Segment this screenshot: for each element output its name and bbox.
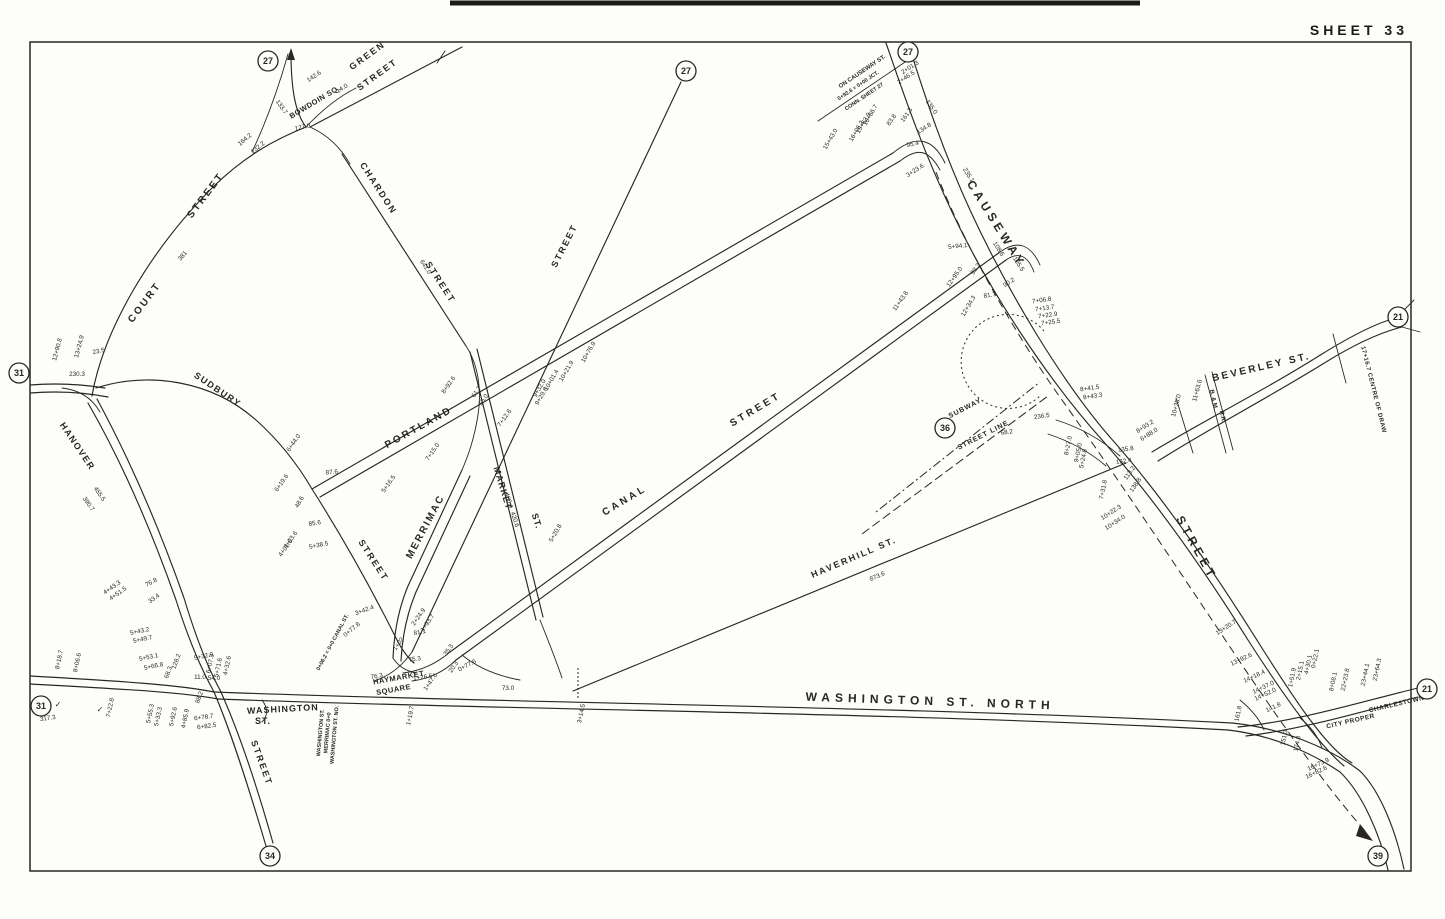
measurement-annotation: 13+24.9 <box>73 334 86 358</box>
measurement-annotation: 5+66.8 <box>143 661 164 672</box>
measurement-annotation: 23+44.1 <box>1360 662 1372 686</box>
measurement-annotation: 133.7 <box>274 99 289 116</box>
reference-circle-number: 27 <box>903 47 913 57</box>
measurement-annotation: 48.6 <box>294 495 306 510</box>
street-name-label: COURT <box>126 280 164 325</box>
measurement-annotation: 4+01.6 <box>277 538 294 558</box>
measurement-annotation: 135.8 <box>1117 445 1134 454</box>
street-line-hanover <box>97 399 220 690</box>
reference-circle-number: 36 <box>940 423 950 433</box>
street-name-label: CHARLESTOWN <box>1368 695 1425 715</box>
measurement-annotation: 3+42.4 <box>354 604 375 617</box>
measurement-annotation: 12+34.3 <box>960 294 978 318</box>
measurement-annotation: 85.6 <box>308 519 322 528</box>
street-line <box>30 684 218 699</box>
street-name-label: HAVERHILL ST. <box>809 535 898 580</box>
measurement-annotation: 73.0 <box>502 685 515 692</box>
sheet-reference-circle: 31 <box>31 696 51 716</box>
measurement-annotation: 5+20.8 <box>548 523 564 544</box>
street-line-canal <box>450 252 1000 652</box>
street-line-portland <box>320 161 900 497</box>
sheet-reference-circle: 27 <box>676 61 696 81</box>
reference-circle-number: 27 <box>681 66 691 76</box>
street-name-label: SUDBURY <box>192 370 243 409</box>
track-map-svg: SHEET 33 <box>0 0 1445 919</box>
measurement-annotation: 164.2 <box>237 132 254 148</box>
street-name-label: 0+06.2 = 0+0 CANAL ST. <box>316 613 351 672</box>
sheet-reference-circle: 34 <box>260 846 280 866</box>
measurement-annotation: 7+31.8 <box>1098 479 1109 500</box>
measurement-annotation: 3+14.5 <box>576 703 587 724</box>
measurement-annotation: 11+43.8 <box>891 290 910 313</box>
measurement-annotation: 230.3 <box>69 371 85 378</box>
junction-curve <box>540 620 562 678</box>
measurement-annotation: 10+76.9 <box>580 340 598 364</box>
sheet-reference-circle: 31 <box>9 363 29 383</box>
reference-circle-number: 21 <box>1422 684 1432 694</box>
street-name-label: STREET <box>356 538 390 583</box>
measurement-annotation: 15+43.0 <box>822 127 840 151</box>
annotations-layer: 142.614.0133.7127.0164.2232.2381641.012+… <box>39 59 1383 780</box>
sheet-reference-circle: 21 <box>1388 307 1408 327</box>
street-name-label: PORTLAND <box>383 405 454 451</box>
measurement-annotation: ✓ <box>97 705 104 714</box>
sheet-reference-circle: 27 <box>258 51 278 71</box>
measurement-annotation: 83.8 <box>885 113 898 127</box>
measurement-annotation: 68.2 <box>1000 428 1014 437</box>
measurement-annotation: 8+27.0 <box>1063 435 1074 456</box>
measurement-annotation: 236.5 <box>1033 412 1050 421</box>
measurement-annotation: 13+92.6 <box>1229 651 1253 667</box>
measurement-annotation: 4+85.9 <box>180 708 191 729</box>
measurement-annotation: 3+23.6 <box>905 162 926 179</box>
street-line-sudbury <box>96 380 312 489</box>
street-name-label: R.R. <box>1218 410 1226 423</box>
measurement-annotation: 6+82.5 <box>197 722 218 732</box>
measurement-annotation: 8+06.6 <box>72 652 83 673</box>
street-name-label: CAUSEWAY <box>964 178 1029 270</box>
measurement-annotation: 7+12.8 <box>496 408 513 428</box>
map-sheet: SHEET 33 <box>0 0 1445 919</box>
street-line-merrimac <box>393 470 462 658</box>
measurement-annotation: 95.4 <box>906 140 920 149</box>
measurement-annotation: 1+19.7 <box>405 705 416 726</box>
measurement-annotation: 13+20.7 <box>1215 618 1238 637</box>
measurement-annotation: 76.8 <box>144 576 159 588</box>
measurement-annotation: 23.5 <box>92 347 106 356</box>
measurement-annotation: 6+44.0 <box>285 433 302 453</box>
street-name-label: ST. <box>255 716 271 726</box>
measurement-annotation: 0+77.6 <box>457 658 478 674</box>
street-line-causeway <box>886 43 1344 766</box>
measurement-annotation: 142.6 <box>306 69 323 84</box>
measurement-annotation: 5+92.6 <box>168 706 179 727</box>
measurement-annotation: 381 <box>177 249 189 262</box>
measurement-annotation: 88.2 <box>194 690 205 704</box>
street-name-label: B. & M. <box>1208 389 1218 410</box>
measurement-annotation: 8+08.1 <box>1328 671 1339 692</box>
junction-curve <box>310 127 350 164</box>
reference-circle-number: 21 <box>1393 312 1403 322</box>
measurement-annotation: 6+19.6 <box>273 473 290 493</box>
reference-circle-number: 39 <box>1373 851 1383 861</box>
measurement-annotation: ✓ <box>55 700 62 709</box>
street-name-label: ST. <box>530 512 544 530</box>
street-name-label: STREET <box>728 390 783 429</box>
measurement-annotation: 87.6 <box>325 468 338 476</box>
measurement-annotation: 5+16.5 <box>380 474 397 494</box>
junction-curve <box>462 346 480 470</box>
street-name-label: SUBWAY <box>948 397 983 420</box>
measurement-annotation: 8+92.6 <box>440 375 457 395</box>
measurement-annotation: 5+53.1 <box>138 652 159 663</box>
reference-circle-number: 31 <box>14 368 24 378</box>
street-line-washington-north <box>214 692 1404 869</box>
sheet-reference-circle: 27 <box>898 42 918 62</box>
measurement-annotation: 12+90.8 <box>51 337 64 361</box>
street-name-label: HANOVER <box>58 421 97 473</box>
subway-loop-dotted-arc <box>961 314 1044 408</box>
measurement-annotation: 8+18.7 <box>54 649 65 670</box>
street-name-label: STREET <box>249 739 275 787</box>
arrow-head <box>1356 824 1373 841</box>
measurement-annotation: 5+38.5 <box>308 540 329 551</box>
measurement-annotation: 138.8 <box>1128 476 1143 493</box>
measurement-annotation: 81.7 <box>983 291 997 300</box>
street-name-label: MERRIMAC <box>404 493 447 561</box>
street-line <box>412 82 681 652</box>
measurement-annotation: 81.1 <box>413 628 427 637</box>
measurement-annotation: 22+23.8 <box>1340 667 1352 691</box>
street-line-beverley <box>1152 318 1396 452</box>
measurement-annotation: 92.2 <box>969 262 982 276</box>
street-name-label: STREET <box>549 222 579 269</box>
sheet-reference-circle: 21 <box>1417 679 1437 699</box>
measurement-annotation: 7+15.0 <box>424 442 441 462</box>
measurement-annotation: 420.6 <box>509 511 521 529</box>
measurement-annotation: 11+63.6 <box>1191 378 1204 402</box>
reference-circle-number: 34 <box>265 851 275 861</box>
measurement-annotation: 7+25.5 <box>1041 318 1062 328</box>
street-line-haverhill <box>573 463 1126 691</box>
sheet-reference-circle: 36 <box>935 418 955 438</box>
reference-circle-number: 27 <box>263 56 273 66</box>
reference-circle-number: 31 <box>36 701 46 711</box>
measurement-annotation: 8+43.3 <box>1083 392 1104 402</box>
measurement-annotation: 4+32.6 <box>222 655 233 676</box>
measurement-annotation: 75.3 <box>408 655 422 664</box>
measurement-annotation: 1+02 <box>392 636 406 652</box>
street-line-hanover <box>88 403 214 692</box>
measurement-annotation: 127.0 <box>294 122 311 132</box>
measurement-annotation: 390.7 <box>81 496 96 513</box>
street-name-label: WASHINGTON <box>247 702 319 716</box>
measurement-annotation: 135.0 <box>924 99 939 116</box>
street-name-label: 17+16.7 CENTRE OF DRAW <box>1359 346 1386 434</box>
street-line-court <box>92 127 306 396</box>
measurement-annotation: 7+22.8 <box>105 697 116 718</box>
measurement-annotation: 132.4 <box>1115 457 1132 466</box>
measurement-annotation: 151.3 <box>1279 729 1289 746</box>
measurement-annotation: 6+78.7 <box>194 713 215 723</box>
street-line <box>30 392 108 397</box>
measurement-annotation: 161.8 <box>1233 705 1243 722</box>
measurement-annotation: 10+21.9 <box>558 359 576 383</box>
measurement-annotation: 5+94.1 <box>948 242 969 251</box>
sheet-title: SHEET 33 <box>1310 22 1408 38</box>
street-line-washington-north <box>218 699 1388 870</box>
sheet-reference-circle: 39 <box>1368 846 1388 866</box>
measurement-annotation: 873.6 <box>869 570 887 583</box>
street-labels-layer: GREENSTREETBOWDOIN SQ.CHARDONSTREETCOURT… <box>58 39 1425 787</box>
measurement-annotation: 54.0 <box>208 675 221 682</box>
measurement-annotation: 33.4 <box>147 592 161 605</box>
measurement-annotation: 134.8 <box>916 121 933 136</box>
measurement-annotation: 0+22.1 <box>1310 648 1321 669</box>
street-line-market <box>477 349 543 617</box>
measurement-annotation: 161.3 <box>899 106 914 123</box>
street-line-chardon <box>342 154 466 346</box>
junction-curve <box>62 388 100 412</box>
measurement-annotation: 23+64.3 <box>1372 657 1384 681</box>
street-name-label: STREET <box>185 170 227 220</box>
measurement-annotation: 455.5 <box>92 486 107 503</box>
street-lines-layer <box>30 43 1420 870</box>
measurement-annotation: 11.0 <box>194 674 206 681</box>
